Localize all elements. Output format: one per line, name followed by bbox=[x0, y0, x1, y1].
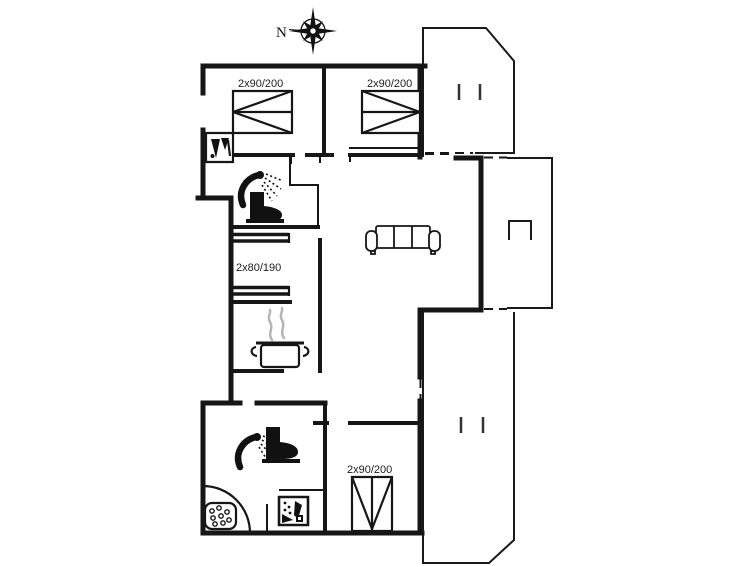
toilet-icon-upper bbox=[246, 192, 284, 223]
corner-bath-icon bbox=[203, 486, 250, 533]
dishwasher-icon bbox=[279, 497, 308, 525]
bed-top-right-icon bbox=[362, 91, 420, 133]
cooking-pot-icon bbox=[252, 308, 309, 367]
compass-rose-icon bbox=[289, 7, 337, 55]
interior-walls bbox=[231, 66, 422, 533]
grill-icon bbox=[509, 221, 531, 240]
compass-north-label: N bbox=[276, 25, 287, 41]
bed-label-top-right: 2x90/200 bbox=[367, 78, 412, 90]
floor-plan: N 2x90/200 2x90/200 2x80/190 2x90/200 bbox=[0, 0, 755, 566]
terrace-top-right bbox=[423, 28, 514, 153]
bed-label-bottom: 2x90/200 bbox=[347, 464, 392, 476]
sofa-icon bbox=[366, 226, 440, 254]
bed-label-bunk-room: 2x80/190 bbox=[236, 262, 281, 274]
bed-label-top-left: 2x90/200 bbox=[238, 78, 283, 90]
terrace-middle-right bbox=[484, 158, 552, 310]
toilet-icon-lower bbox=[262, 427, 300, 463]
bed-top-left-icon bbox=[233, 91, 292, 133]
bed-bottom-icon bbox=[352, 477, 392, 531]
terrace-bottom-right bbox=[421, 312, 515, 563]
washing-machine-icon bbox=[206, 133, 233, 162]
floor-plan-drawing: N 2x90/200 2x90/200 2x80/190 2x90/200 bbox=[0, 0, 755, 566]
